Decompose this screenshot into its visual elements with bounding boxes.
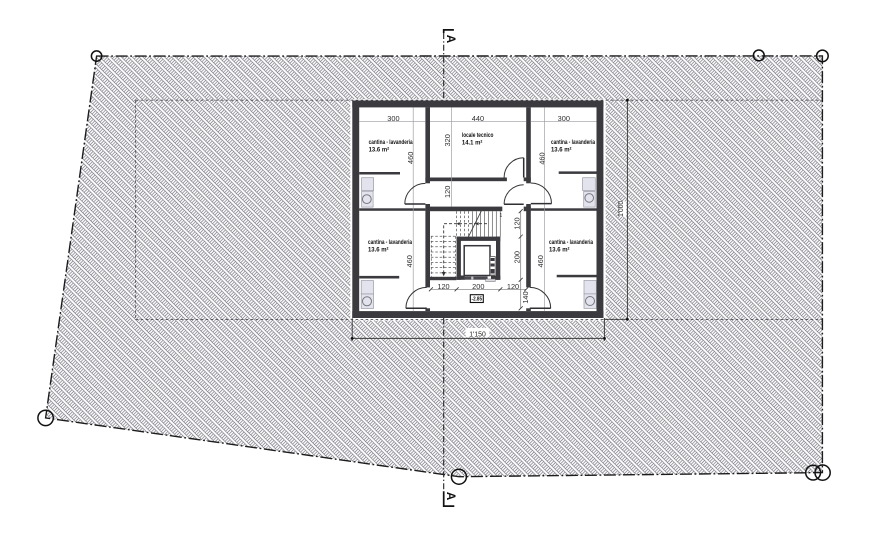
svg-text:300: 300 [387,115,399,123]
svg-text:460: 460 [407,152,415,164]
svg-text:140: 140 [522,291,530,303]
svg-text:300: 300 [558,115,570,123]
svg-text:13.6 m²: 13.6 m² [551,147,572,154]
svg-text:locale tecnico: locale tecnico [462,132,494,139]
svg-text:200: 200 [514,251,522,263]
svg-text:460: 460 [539,152,547,164]
svg-text:13.6 m²: 13.6 m² [369,147,390,154]
svg-text:120: 120 [444,186,452,198]
svg-text:13.6 m²: 13.6 m² [368,247,389,254]
svg-text:13.6 m²: 13.6 m² [549,247,570,254]
svg-text:-2.85: -2.85 [472,297,483,303]
svg-text:cantina - lavanderia: cantina - lavanderia [549,239,593,246]
svg-text:200: 200 [472,283,484,291]
svg-text:A: A [444,35,457,44]
svg-text:1'150: 1'150 [469,329,486,338]
svg-text:460: 460 [406,255,414,267]
svg-text:14.1 m²: 14.1 m² [462,140,483,147]
svg-text:460: 460 [537,255,545,267]
svg-text:120: 120 [437,283,449,291]
svg-text:cantina - lavanderia: cantina - lavanderia [551,139,595,146]
svg-text:440: 440 [472,115,484,123]
svg-text:cantina - lavanderia: cantina - lavanderia [369,139,413,146]
svg-text:1: 1 [500,213,503,219]
svg-text:cantina - lavanderia: cantina - lavanderia [368,239,412,246]
svg-text:320: 320 [444,134,452,146]
svg-text:120: 120 [514,217,522,229]
svg-text:A: A [444,492,457,501]
svg-text:120: 120 [507,283,519,291]
svg-text:1'000: 1'000 [616,201,625,217]
